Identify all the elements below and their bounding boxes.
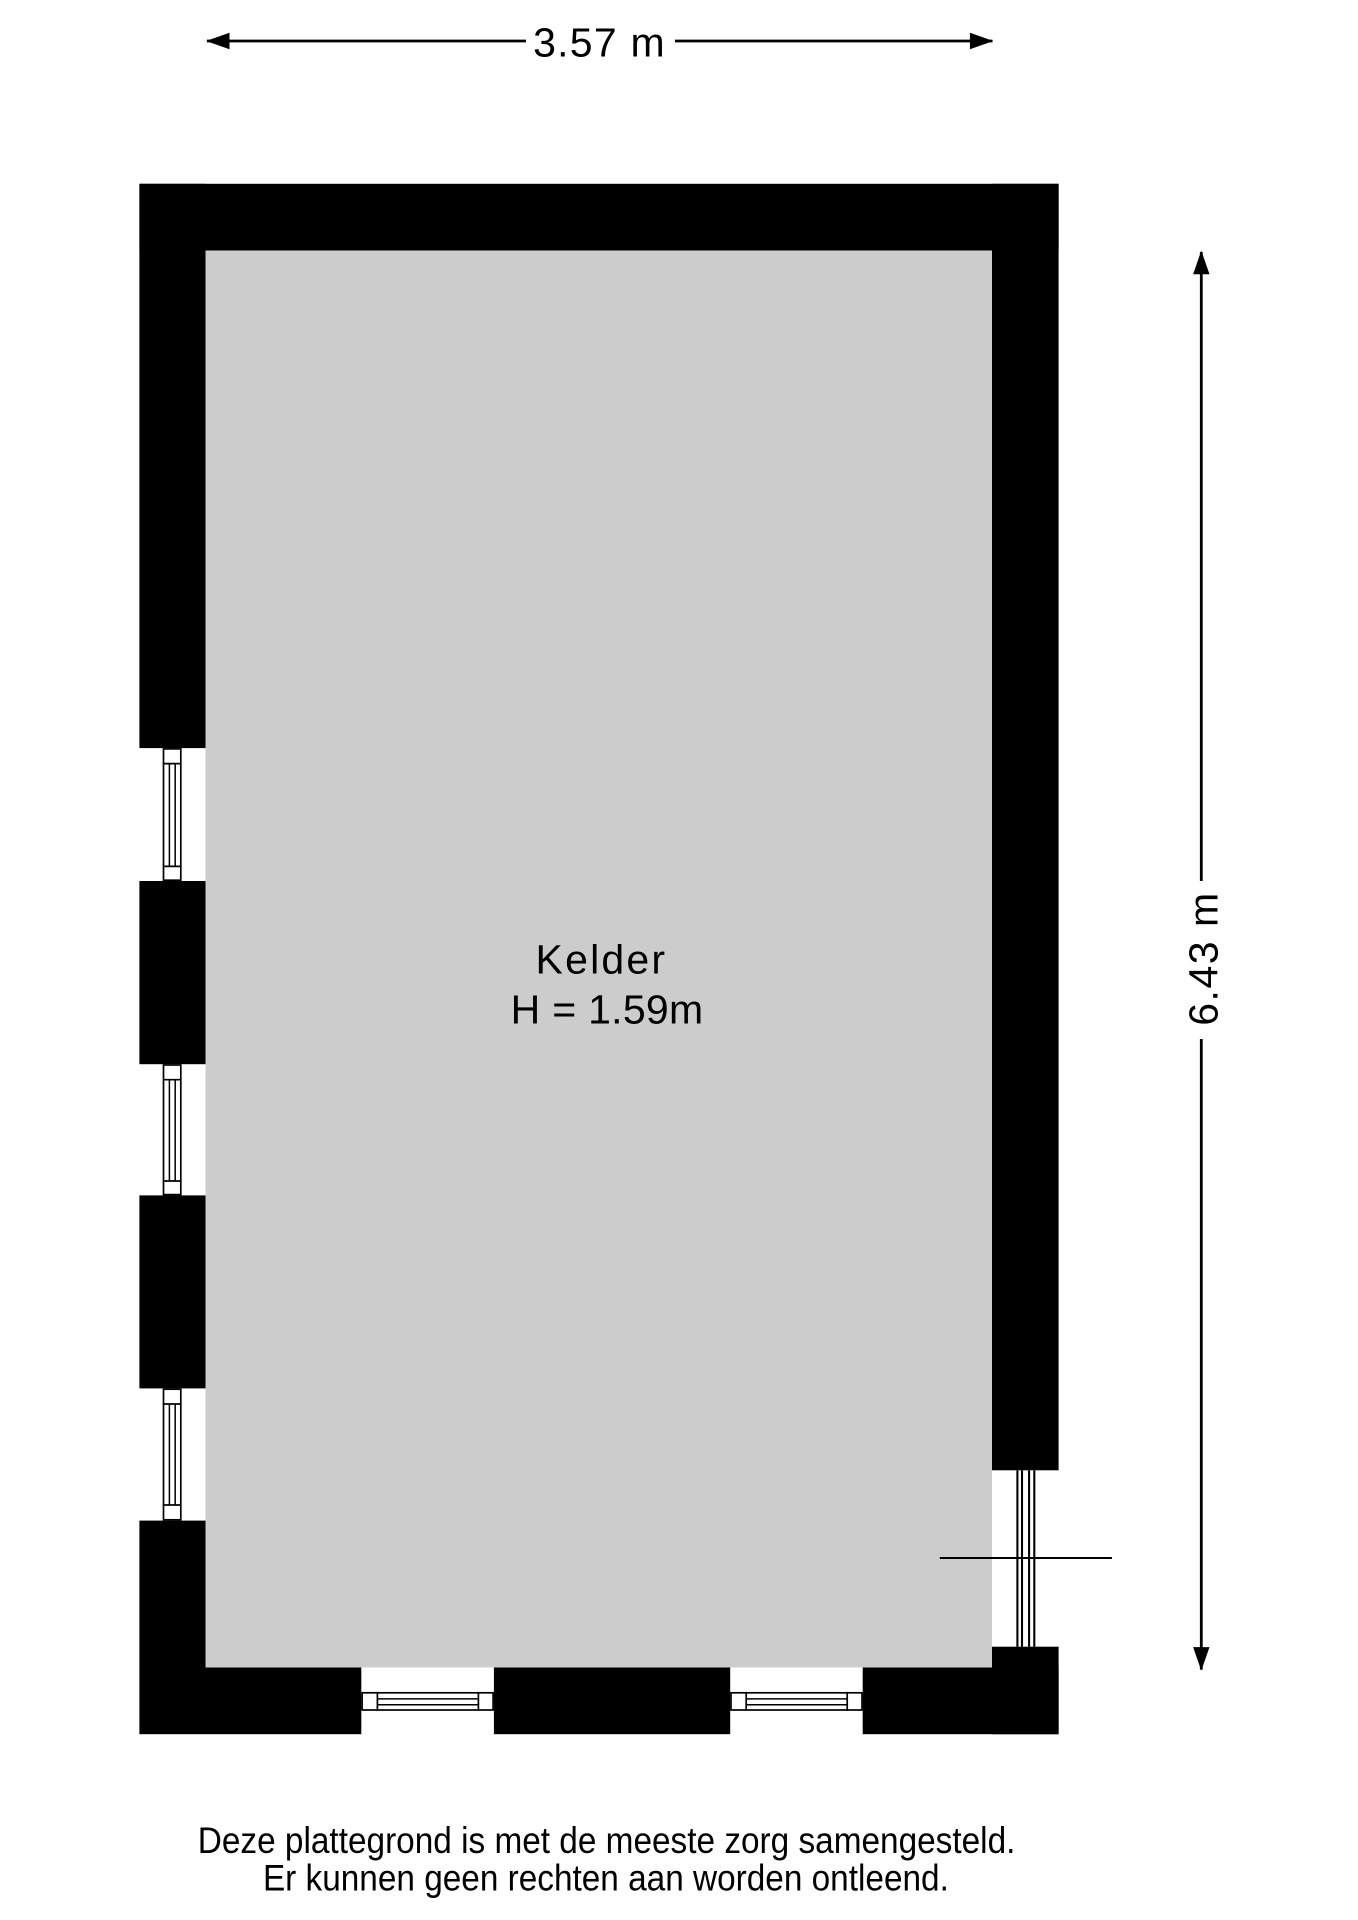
svg-text:6.43 m: 6.43 m [1180, 893, 1226, 1026]
svg-text:3.57 m: 3.57 m [533, 20, 665, 66]
svg-text:Er kunnen geen rechten aan wor: Er kunnen geen rechten aan worden ontlee… [263, 1856, 949, 1898]
svg-text:Deze plattegrond is met de mee: Deze plattegrond is met de meeste zorg s… [198, 1819, 1016, 1861]
svg-text:H = 1.59m: H = 1.59m [511, 987, 704, 1033]
